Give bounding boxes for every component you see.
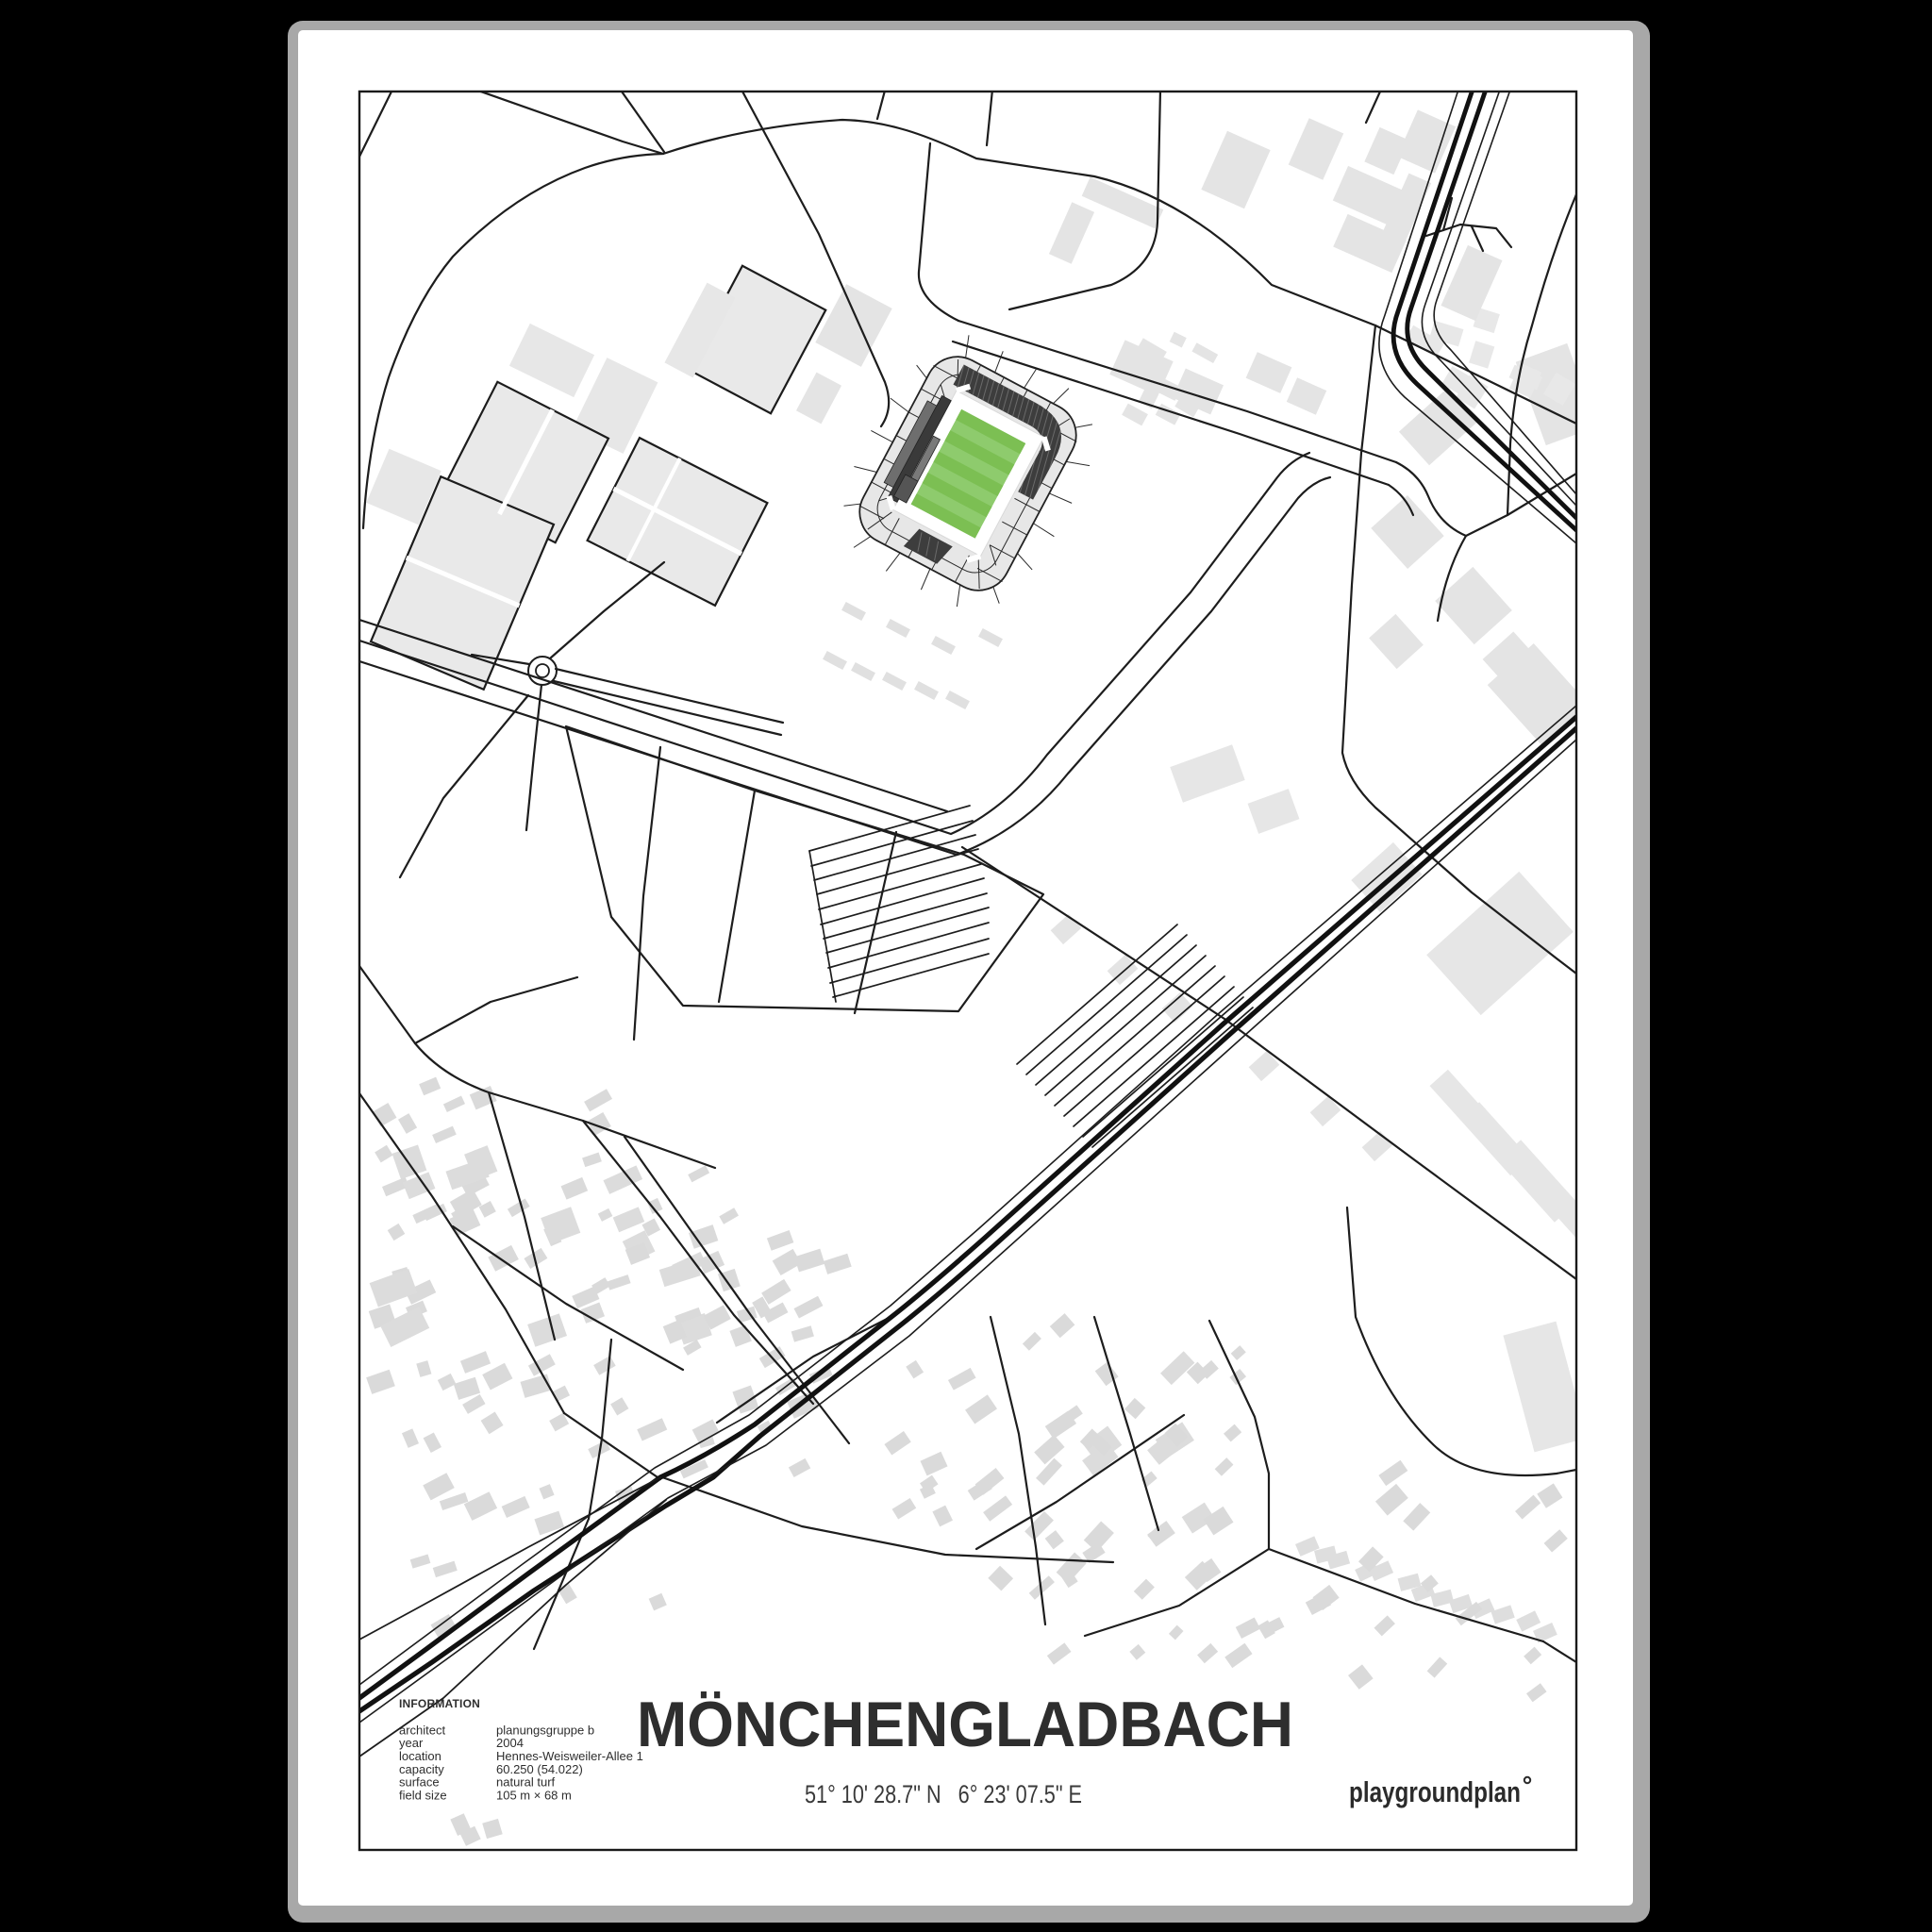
svg-text:location: location xyxy=(399,1749,441,1763)
svg-text:51° 10' 28.7" N 6° 23' 07.5": 51° 10' 28.7" N 6° 23' 07.5" E xyxy=(805,1780,1082,1808)
svg-text:2004: 2004 xyxy=(496,1736,524,1750)
svg-text:105 m × 68 m: 105 m × 68 m xyxy=(496,1788,572,1802)
svg-text:surface: surface xyxy=(399,1775,440,1790)
svg-text:Hennes-Weisweiler-Allee 1: Hennes-Weisweiler-Allee 1 xyxy=(496,1749,643,1763)
svg-text:INFORMATION: INFORMATION xyxy=(399,1697,480,1710)
svg-text:natural turf: natural turf xyxy=(496,1775,556,1790)
svg-text:year: year xyxy=(399,1736,424,1750)
svg-text:MÖNCHENGLADBACH: MÖNCHENGLADBACH xyxy=(637,1689,1293,1760)
svg-text:field size: field size xyxy=(399,1788,447,1802)
svg-text:playgroundplan: playgroundplan xyxy=(1349,1775,1521,1808)
